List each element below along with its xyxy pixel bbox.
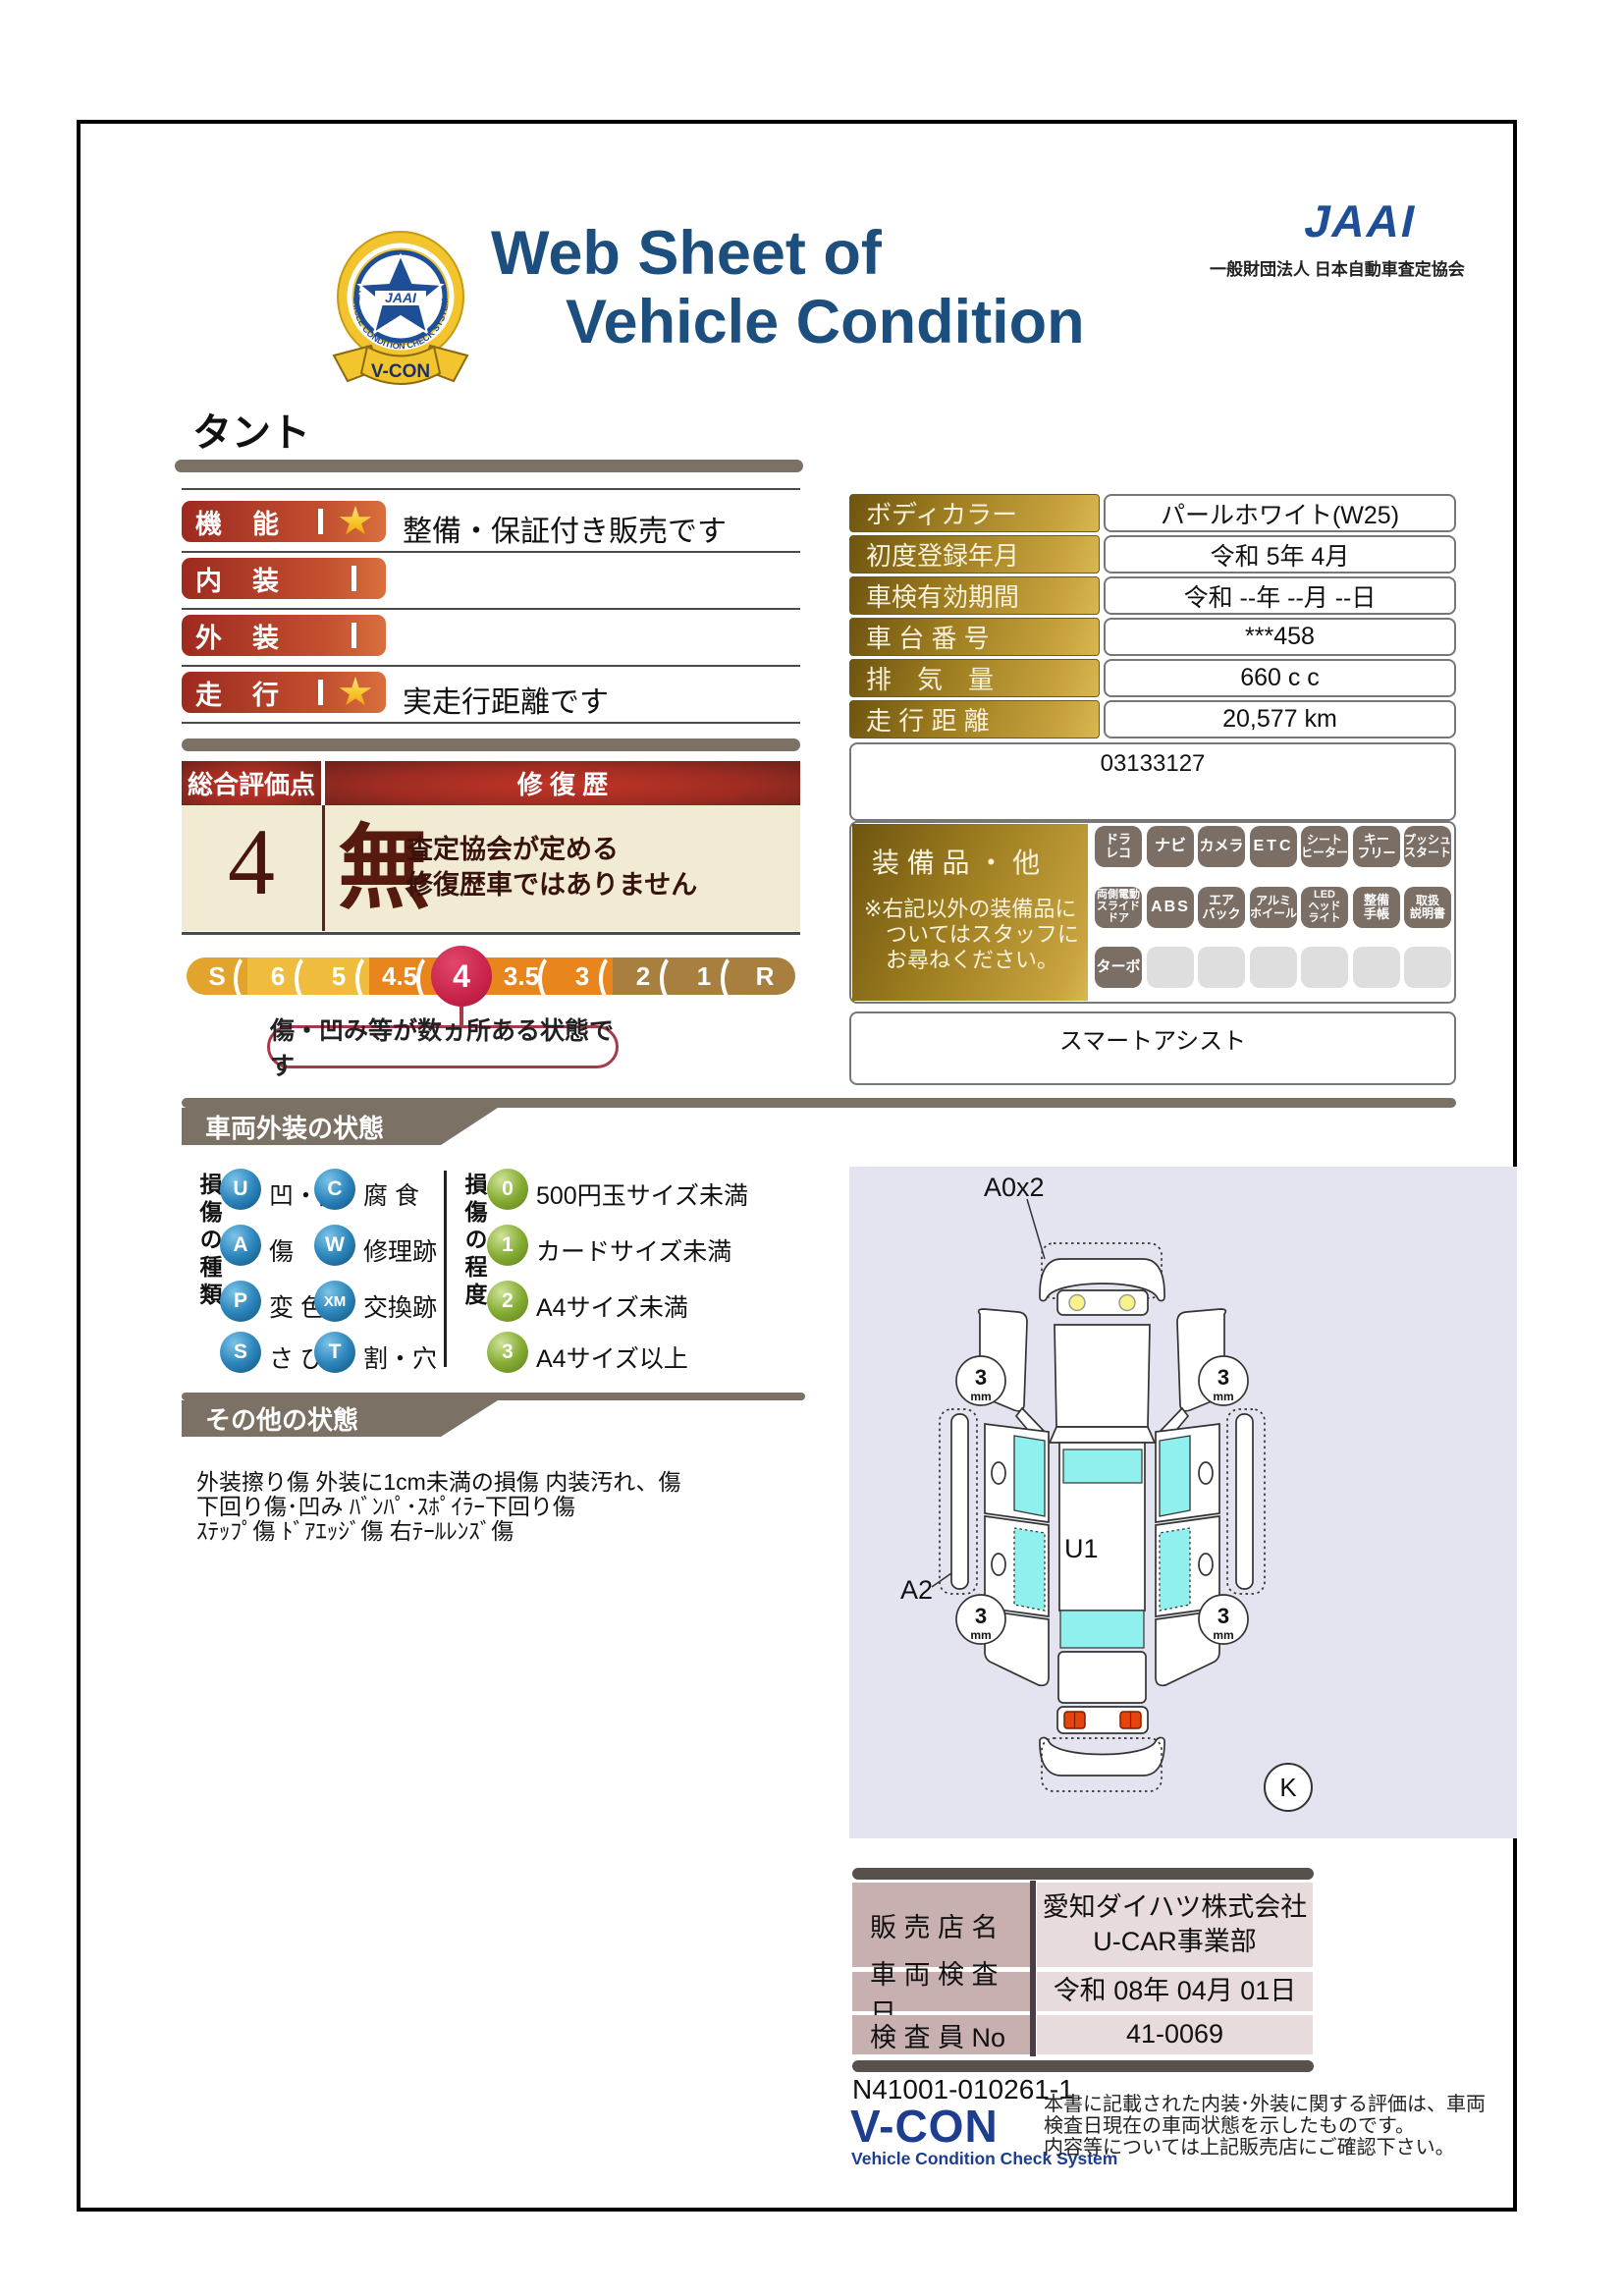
damage-type-label: 割・穴 (363, 1339, 437, 1375)
dealer-value: 41-0069 (1037, 2015, 1313, 2054)
repair-history-header: 修 復 歴 (325, 761, 800, 805)
equipment-note-line2: ついてはスタッフに (864, 922, 1088, 948)
repair-note-line2: 修復歴車ではありません (406, 868, 697, 902)
legend-divider (444, 1171, 447, 1367)
section-divider-bar (175, 460, 803, 472)
damage-label-front: A0x2 (984, 1173, 1045, 1202)
rating-row-exterior: 外 装 (182, 615, 386, 656)
info-value: 令和 --年 --月 --日 (1104, 576, 1456, 615)
star-icon (339, 677, 372, 708)
damage-label-roof: U1 (1064, 1534, 1099, 1563)
star-icon (339, 506, 372, 537)
rating-label: 走 行 (195, 674, 281, 712)
damage-type-p: P (220, 1281, 261, 1322)
selected-grade-marker: 4 (431, 946, 492, 1007)
svg-text:3: 3 (1217, 1604, 1229, 1628)
equipment-badge-empty (1301, 947, 1348, 988)
other-condition-line3: ｽﾃｯﾌﾟ傷 ﾄﾞｱｴｯｼﾞ傷 右ﾃｰﾙﾚﾝｽﾞ傷 (196, 1512, 514, 1546)
equipment-badge-empty (1147, 947, 1194, 988)
equipment-badge-camera: カメラ (1198, 826, 1245, 867)
damage-label-side: A2 (900, 1575, 933, 1605)
disclaimer-line1: 本書に記載された内装･外装に関する評価は、車両 (1044, 2094, 1515, 2115)
svg-text:mm: mm (1213, 1628, 1233, 1642)
section-strip (182, 1098, 1456, 1108)
equipment-badge-turbo: ターボ (1095, 947, 1142, 988)
reference-number-box: 03133127 (849, 742, 1456, 821)
smart-assist-label: スマートアシスト (1059, 1028, 1246, 1055)
damage-level-3: 3 (487, 1332, 528, 1373)
info-label: 車 台 番 号 (849, 618, 1100, 656)
damage-type-label: 交換跡 (363, 1288, 437, 1324)
rating-row-mileage: 走 行 (182, 672, 386, 713)
damage-type-a: A (220, 1225, 261, 1266)
sheet-title-line1: Web Sheet of (491, 218, 882, 289)
rating-separator (182, 488, 800, 490)
damage-level-label: A4サイズ以上 (536, 1339, 688, 1375)
damage-type-t: T (314, 1332, 355, 1373)
vehicle-condition-sheet: { "colors": { "title_navy": "#1C4E7E", "… (0, 0, 1623, 2296)
equipment-badge-abs: ABS (1147, 887, 1194, 928)
equipment-badge-dashcam: ドラレコ (1095, 826, 1142, 867)
info-label: 車検有効期間 (849, 576, 1100, 615)
equipment-badge-empty (1353, 947, 1400, 988)
dealer-value: 令和 08年 04月 01日 (1037, 1972, 1313, 2011)
score-divider (322, 805, 325, 931)
rating-tick (352, 623, 356, 648)
damage-level-2: 2 (487, 1281, 528, 1322)
equipment-badge-owners-manual: 取扱説明書 (1404, 887, 1451, 928)
damage-type-u: U (220, 1169, 261, 1210)
equipment-badge-empty (1250, 947, 1297, 988)
vcon-badge-icon: JAAI VEHICLE CONDITION CHECK SYSTEM V-CO… (324, 218, 477, 414)
damage-level-1: 1 (487, 1225, 528, 1266)
overall-score-header: 総合評価点 (182, 761, 321, 805)
disclaimer: 本書に記載された内装･外装に関する評価は、車両 検査日現在の車両状態を示したもの… (1044, 2094, 1515, 2159)
info-label: 排 気 量 (849, 659, 1100, 697)
rating-tick (318, 680, 323, 705)
damage-level-label: A4サイズ未満 (536, 1288, 688, 1324)
info-value: ***458 (1104, 618, 1456, 656)
jaai-logo: JAAI (1300, 194, 1422, 247)
svg-text:3: 3 (975, 1604, 987, 1628)
info-value: 20,577 km (1104, 700, 1456, 738)
dealer-label: 車 両 検 査 日 (852, 1972, 1031, 2011)
section-divider-bar (182, 738, 800, 751)
equipment-badge-navi: ナビ (1147, 826, 1194, 867)
damage-type-s: S (220, 1332, 261, 1373)
equipment-badge-service-record: 整備手帳 (1353, 887, 1400, 928)
equipment-header: 装 備 品 ・ 他 (872, 842, 1088, 881)
score-bottom-line (182, 932, 800, 935)
equipment-badge-etc: ETC (1250, 826, 1297, 867)
damage-type-label: 修理跡 (363, 1232, 437, 1268)
svg-text:3: 3 (975, 1365, 987, 1390)
damage-level-label: 500円玉サイズ未満 (536, 1176, 748, 1212)
scale-segment-r: R (734, 957, 795, 995)
rating-note: 実走行距離です (403, 678, 609, 721)
equipment-badge-push-start: プッシュスタート (1404, 826, 1451, 867)
disclaimer-line2: 検査日現在の車両状態を示したものです。 (1044, 2115, 1515, 2137)
rating-label: 外 装 (195, 617, 281, 655)
info-value: 令和 5年 4月 (1104, 535, 1456, 574)
equipment-badge-led-headlight: LEDヘッドライト (1301, 887, 1348, 928)
grade-balloon: 傷・凹み等が数ヵ所ある状態です (267, 1025, 619, 1068)
svg-text:mm: mm (970, 1628, 991, 1642)
jaai-organization: 一般財団法人 日本自動車査定協会 (1210, 255, 1465, 280)
info-label: ボディカラー (849, 494, 1100, 532)
svg-text:mm: mm (970, 1390, 991, 1403)
rating-separator (182, 551, 800, 553)
rating-separator (182, 608, 800, 610)
vehicle-name: タント (192, 401, 310, 458)
equipment-note-line1: ※右記以外の装備品に (864, 897, 1088, 922)
rating-row-interior: 内 装 (182, 558, 386, 599)
damage-type-label: 傷 (269, 1232, 294, 1268)
equipment-badge-keyfree: キーフリー (1353, 826, 1400, 867)
rating-tick (352, 566, 356, 591)
svg-text:JAAI: JAAI (385, 290, 417, 305)
equipment-badge-seat-heater: シートヒーター (1301, 826, 1348, 867)
section-strip (182, 1393, 805, 1400)
damage-level-0: 0 (487, 1169, 528, 1210)
equipment-badge-empty (1404, 947, 1451, 988)
equipment-header-panel: 装 備 品 ・ 他 ※右記以外の装備品に ついてはスタッフに お尋ねください。 (852, 824, 1088, 1001)
rating-tick (318, 509, 323, 534)
damage-type-label: 腐 食 (363, 1176, 419, 1212)
info-value: 660 c c (1104, 659, 1456, 697)
dealer-column-divider (1030, 1881, 1036, 2056)
dealer-top-bar (852, 1868, 1314, 1880)
rating-label: 内 装 (195, 560, 281, 598)
damage-label-corner: K (1279, 1773, 1297, 1802)
dealer-label: 検 査 員 No (852, 2015, 1031, 2054)
damage-level-header: 損傷の程度 (458, 1173, 491, 1379)
rating-separator (182, 722, 800, 724)
equipment-badge-airbag: エアバック (1198, 887, 1245, 928)
sheet-title-line2: Vehicle Condition (566, 287, 1085, 357)
equipment-note-line3: お尋ねください。 (864, 948, 1088, 973)
rating-note: 整備・保証付き販売です (403, 507, 727, 550)
rating-row-function: 機 能 (182, 501, 386, 542)
equipment-badge-power-slide-door: 両側電動スライドドア (1095, 887, 1142, 928)
equipment-badge-alloy-wheels: アルミホイール (1250, 887, 1297, 928)
vcon-logo: V-CON (850, 2100, 999, 2153)
svg-text:3: 3 (1217, 1365, 1229, 1390)
damage-type-xm: XM (314, 1281, 355, 1322)
repair-note-line1: 査定協会が定める (406, 833, 619, 866)
disclaimer-line3: 内容等については上記販売店にご確認下さい。 (1044, 2137, 1515, 2159)
vehicle-damage-diagram: 3 mm 3 mm 3 mm 3 mm A0x2 U1 A2 K (849, 1167, 1517, 1838)
reference-number: 03133127 (1101, 750, 1206, 777)
dealer-bottom-bar (852, 2060, 1314, 2072)
rating-label: 機 能 (195, 503, 281, 541)
damage-type-w: W (314, 1225, 355, 1266)
damage-type-c: C (314, 1169, 355, 1210)
info-label: 初度登録年月 (849, 535, 1100, 574)
info-label: 走 行 距 離 (849, 700, 1100, 738)
equipment-badge-empty (1198, 947, 1245, 988)
svg-text:mm: mm (1213, 1390, 1233, 1403)
rating-separator (182, 665, 800, 667)
info-value: パールホワイト(W25) (1104, 494, 1456, 532)
damage-level-label: カードサイズ未満 (536, 1232, 731, 1268)
overall-score-value: 4 (182, 807, 321, 916)
svg-text:V-CON: V-CON (371, 361, 430, 382)
smart-assist-box: スマートアシスト (849, 1011, 1456, 1085)
dealer-value: 愛知ダイハツ株式会社 U-CAR事業部 (1037, 1883, 1313, 1967)
